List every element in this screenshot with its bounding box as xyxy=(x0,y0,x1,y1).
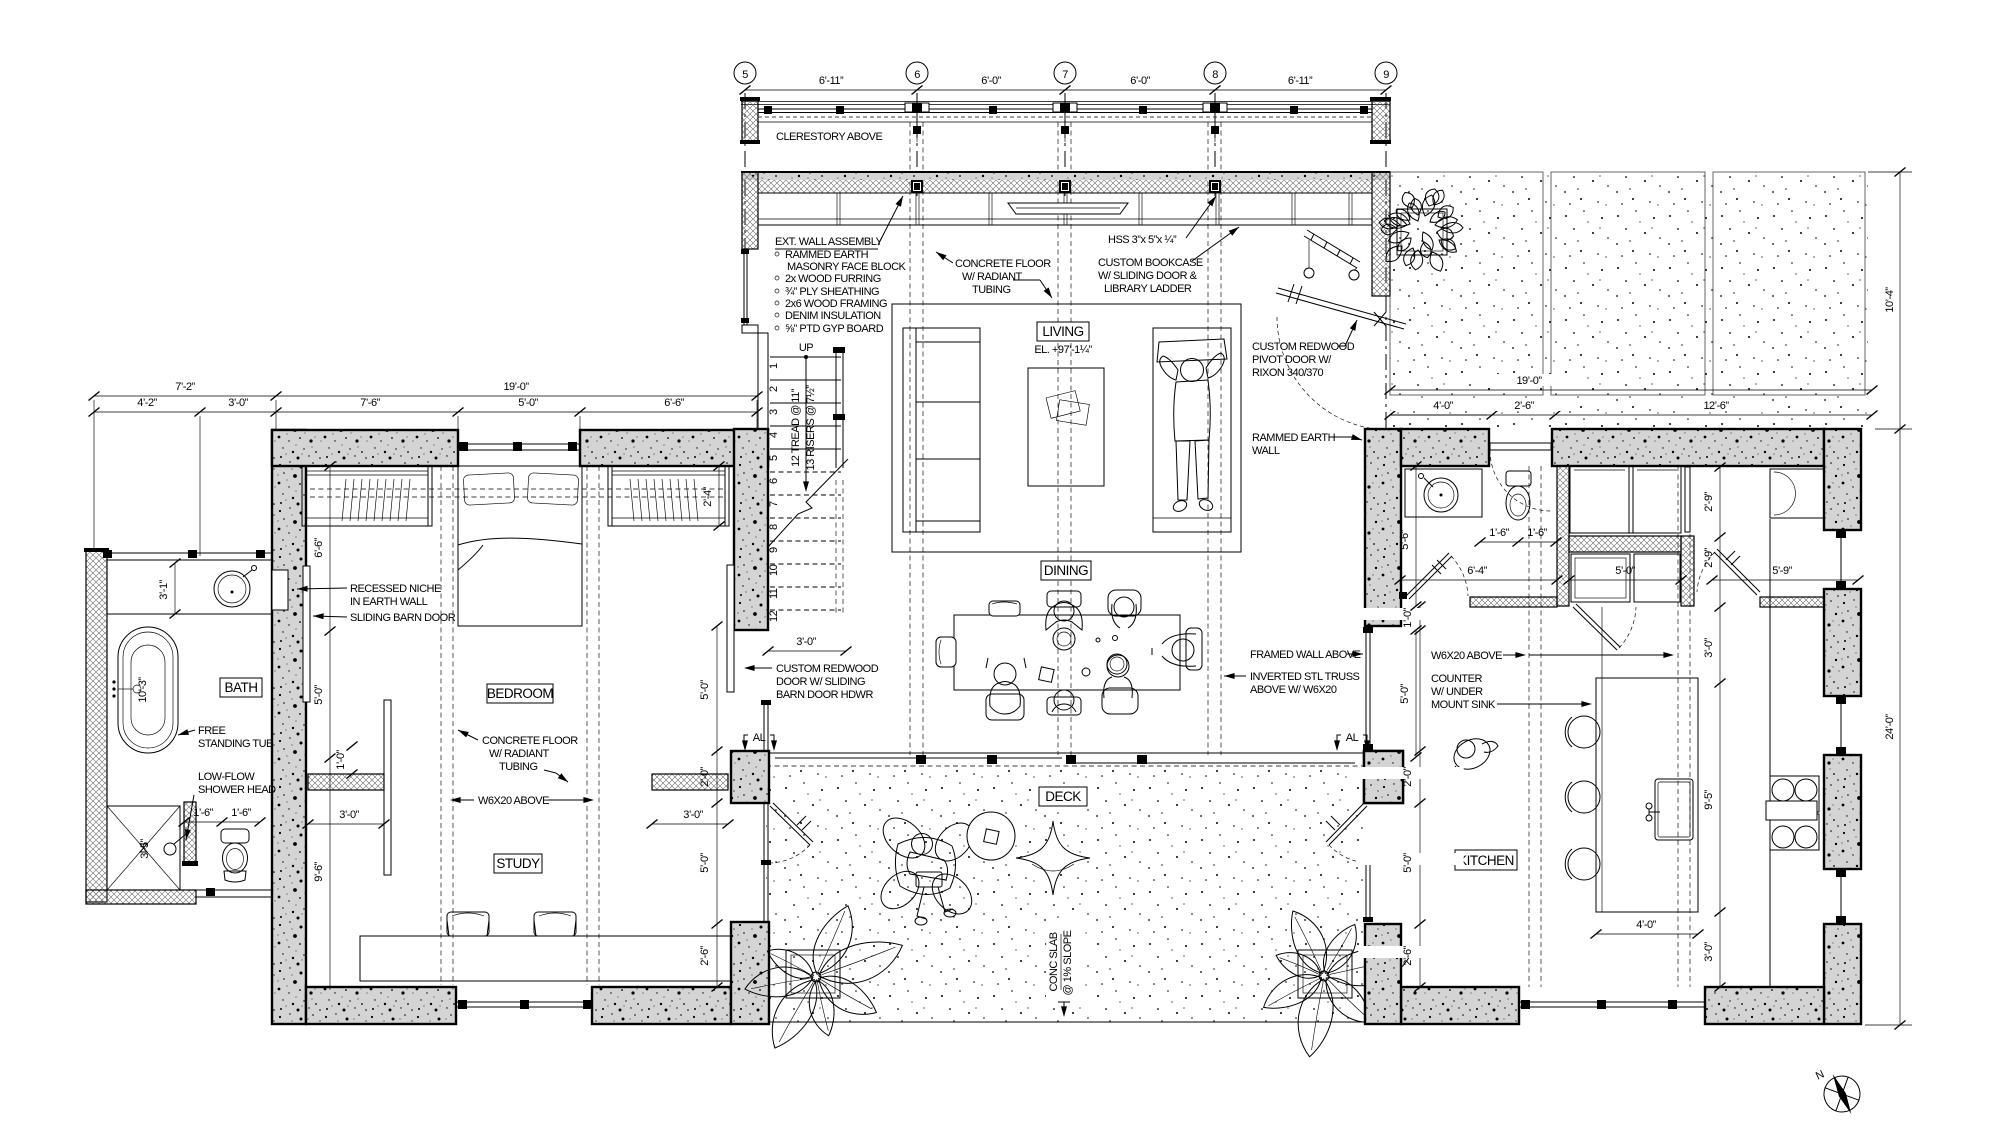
svg-text:LIBRARY LADDER: LIBRARY LADDER xyxy=(1104,283,1192,295)
svg-text:STUDY: STUDY xyxy=(496,856,540,871)
svg-text:SLIDING BARN DOOR: SLIDING BARN DOOR xyxy=(350,612,456,624)
svg-text:CLERESTORY ABOVE: CLERESTORY ABOVE xyxy=(776,131,882,143)
svg-text:INVERTED STL TRUSS: INVERTED STL TRUSS xyxy=(1250,671,1360,683)
svg-text:5: 5 xyxy=(742,69,748,81)
svg-text:KITCHEN: KITCHEN xyxy=(1458,853,1514,868)
svg-text:CUSTOM BOOKCASE: CUSTOM BOOKCASE xyxy=(1098,257,1203,269)
svg-text:TUBING: TUBING xyxy=(499,761,538,773)
svg-text:EXT. WALL ASSEMBLY: EXT. WALL ASSEMBLY xyxy=(775,236,884,248)
svg-text:1’-6”: 1’-6” xyxy=(1527,527,1547,539)
svg-text:2x WOOD FURRING: 2x WOOD FURRING xyxy=(785,273,881,285)
svg-text:1’-0”: 1’-0” xyxy=(1402,607,1414,627)
svg-text:3’-0”: 3’-0” xyxy=(683,809,703,821)
svg-text:7’-6”: 7’-6” xyxy=(360,397,380,409)
svg-text:UP: UP xyxy=(799,342,813,354)
svg-text:10’-4”: 10’-4” xyxy=(1884,287,1896,313)
svg-text:12 TREAD @ 11”: 12 TREAD @ 11” xyxy=(790,388,802,467)
svg-text:BATH: BATH xyxy=(224,680,257,695)
svg-text:5’-0”: 5’-0” xyxy=(1399,683,1411,703)
svg-text:¾” PLY SHEATHING: ¾” PLY SHEATHING xyxy=(785,286,879,298)
svg-text:CUSTOM REDWOOD: CUSTOM REDWOOD xyxy=(776,663,879,675)
svg-text:3’-0”: 3’-0” xyxy=(228,397,248,409)
svg-text:12’-6”: 12’-6” xyxy=(1703,400,1729,412)
svg-text:8: 8 xyxy=(768,524,780,530)
svg-text:6’-11”: 6’-11” xyxy=(1288,75,1313,87)
svg-text:1’-0”: 1’-0” xyxy=(335,749,347,769)
svg-text:2x6 WOOD FRAMING: 2x6 WOOD FRAMING xyxy=(785,298,887,310)
svg-text:3’-0”: 3’-0” xyxy=(339,809,359,821)
svg-text:9’-6”: 9’-6” xyxy=(313,861,325,881)
svg-text:4’-2”: 4’-2” xyxy=(137,397,157,409)
svg-text:8: 8 xyxy=(1212,69,1218,81)
svg-text:2’-4”: 2’-4” xyxy=(702,486,714,506)
svg-text:W/ UNDER: W/ UNDER xyxy=(1431,686,1483,698)
svg-text:9: 9 xyxy=(768,547,780,553)
svg-text:PIVOT DOOR W/: PIVOT DOOR W/ xyxy=(1252,354,1332,366)
svg-text:W/ RADIANT: W/ RADIANT xyxy=(489,748,550,760)
svg-text:5’-6”: 5’-6” xyxy=(1399,529,1411,549)
svg-text:DECK: DECK xyxy=(1045,789,1081,804)
svg-text:6’-11”: 6’-11” xyxy=(819,75,844,87)
svg-text:1’-6”: 1’-6” xyxy=(193,807,213,819)
svg-text:W/ RADIANT: W/ RADIANT xyxy=(962,271,1023,283)
svg-text:CONC SLAB: CONC SLAB xyxy=(1048,932,1060,991)
svg-text:STANDING TUB: STANDING TUB xyxy=(198,738,273,750)
svg-text:3: 3 xyxy=(768,409,780,415)
svg-text:9: 9 xyxy=(1383,69,1389,81)
svg-text:6’-6”: 6’-6” xyxy=(664,397,684,409)
svg-text:6: 6 xyxy=(768,478,780,484)
svg-text:11: 11 xyxy=(768,588,780,599)
svg-text:@ 1% SLOPE: @ 1% SLOPE xyxy=(1062,930,1074,995)
svg-text:5’-0”: 5’-0” xyxy=(699,852,711,872)
svg-text:RAMMED EARTH: RAMMED EARTH xyxy=(1252,432,1336,444)
svg-text:2: 2 xyxy=(768,386,780,392)
svg-text:RIXON 340/370: RIXON 340/370 xyxy=(1252,367,1324,379)
svg-text:RAMMED EARTH: RAMMED EARTH xyxy=(785,249,869,261)
svg-text:10: 10 xyxy=(768,564,780,576)
svg-text:5’-9”: 5’-9” xyxy=(1772,565,1792,577)
svg-text:DINING: DINING xyxy=(1044,563,1088,578)
svg-text:ABOVE W/ W6X20: ABOVE W/ W6X20 xyxy=(1250,684,1337,696)
svg-text:3’-0”: 3’-0” xyxy=(1703,941,1715,961)
svg-text:5’-0”: 5’-0” xyxy=(518,397,538,409)
svg-text:AL: AL xyxy=(753,732,766,744)
svg-text:1’-6”: 1’-6” xyxy=(1489,527,1509,539)
svg-text:5: 5 xyxy=(768,455,780,461)
svg-text:4’-0”: 4’-0” xyxy=(1636,919,1656,931)
svg-text:2’-6”: 2’-6” xyxy=(1402,945,1414,965)
svg-text:5’-0”: 5’-0” xyxy=(699,679,711,699)
svg-text:1’-6”: 1’-6” xyxy=(231,807,251,819)
svg-text:W6X20 ABOVE: W6X20 ABOVE xyxy=(1431,650,1502,662)
svg-text:DENIM INSULATION: DENIM INSULATION xyxy=(785,310,881,322)
svg-text:3’-0”: 3’-0” xyxy=(1703,637,1715,657)
svg-text:EL. +97’-1¼”: EL. +97’-1¼” xyxy=(1034,344,1092,356)
svg-text:2’-9”: 2’-9” xyxy=(1703,491,1715,511)
svg-text:2’-0”: 2’-0” xyxy=(1402,766,1414,786)
svg-text:W/ SLIDING DOOR &: W/ SLIDING DOOR & xyxy=(1098,270,1198,282)
svg-text:6’-0”: 6’-0” xyxy=(1130,75,1150,87)
svg-text:12: 12 xyxy=(768,610,780,622)
svg-text:FREE: FREE xyxy=(198,725,226,737)
svg-text:5’-0”: 5’-0” xyxy=(313,684,325,704)
svg-text:RECESSED NICHE: RECESSED NICHE xyxy=(350,583,441,595)
svg-text:DOOR W/ SLIDING: DOOR W/ SLIDING xyxy=(776,676,865,688)
svg-text:TUBING: TUBING xyxy=(972,284,1011,296)
svg-text:3’-1”: 3’-1” xyxy=(158,579,170,599)
svg-text:W6X20 ABOVE: W6X20 ABOVE xyxy=(478,795,549,807)
svg-text:COUNTER: COUNTER xyxy=(1431,673,1482,685)
svg-text:6’-0”: 6’-0” xyxy=(981,75,1001,87)
svg-text:CONCRETE FLOOR: CONCRETE FLOOR xyxy=(482,735,578,747)
svg-text:3’-5”: 3’-5” xyxy=(139,838,151,858)
svg-text:5’-0”: 5’-0” xyxy=(1615,565,1635,577)
svg-text:MASONRY FACE BLOCK: MASONRY FACE BLOCK xyxy=(787,261,907,273)
svg-text:24’-0”: 24’-0” xyxy=(1884,714,1896,740)
svg-text:WALL: WALL xyxy=(1252,445,1280,457)
svg-text:7’-2”: 7’-2” xyxy=(175,381,195,393)
svg-text:SHOWER HEAD: SHOWER HEAD xyxy=(198,784,276,796)
svg-text:3’-0”: 3’-0” xyxy=(796,636,816,648)
svg-text:FRAMED WALL ABOVE: FRAMED WALL ABOVE xyxy=(1250,649,1361,661)
svg-text:9’-5”: 9’-5” xyxy=(1703,789,1715,809)
svg-text:6’-6”: 6’-6” xyxy=(313,537,325,557)
svg-text:2’-0”: 2’-0” xyxy=(699,766,711,786)
svg-text:10’-3”: 10’-3” xyxy=(137,677,149,703)
svg-text:13 RISERS @ 7½”: 13 RISERS @ 7½” xyxy=(805,385,817,471)
svg-text:AL: AL xyxy=(1346,732,1359,744)
svg-text:4: 4 xyxy=(768,432,780,438)
svg-text:7: 7 xyxy=(768,501,780,507)
svg-text:2’-6”: 2’-6” xyxy=(699,945,711,965)
svg-text:6’-4”: 6’-4” xyxy=(1467,565,1487,577)
svg-text:LIVING: LIVING xyxy=(1042,324,1083,339)
svg-text:CUSTOM REDWOOD: CUSTOM REDWOOD xyxy=(1252,341,1355,353)
svg-text:BEDROOM: BEDROOM xyxy=(487,686,554,701)
svg-text:2’-6”: 2’-6” xyxy=(1514,400,1534,412)
svg-text:HSS 3”x 5”x ¼”: HSS 3”x 5”x ¼” xyxy=(1108,234,1177,246)
svg-text:LOW-FLOW: LOW-FLOW xyxy=(198,771,255,783)
svg-text:4’-0”: 4’-0” xyxy=(1433,400,1453,412)
svg-text:CONCRETE FLOOR: CONCRETE FLOOR xyxy=(955,258,1051,270)
svg-text:MOUNT SINK: MOUNT SINK xyxy=(1431,699,1496,711)
svg-text:1: 1 xyxy=(768,363,780,369)
svg-text:19’-0”: 19’-0” xyxy=(1516,375,1542,387)
svg-text:19’-0”: 19’-0” xyxy=(503,381,529,393)
svg-text:IN EARTH WALL: IN EARTH WALL xyxy=(350,596,428,608)
svg-text:7: 7 xyxy=(1062,69,1068,81)
svg-text:BARN DOOR HDWR: BARN DOOR HDWR xyxy=(776,689,873,701)
svg-text:⅝” PTD GYP BOARD: ⅝” PTD GYP BOARD xyxy=(785,323,884,335)
svg-text:5’-0”: 5’-0” xyxy=(1402,852,1414,872)
svg-text:2’-9”: 2’-9” xyxy=(1703,547,1715,567)
svg-text:6: 6 xyxy=(914,69,920,81)
